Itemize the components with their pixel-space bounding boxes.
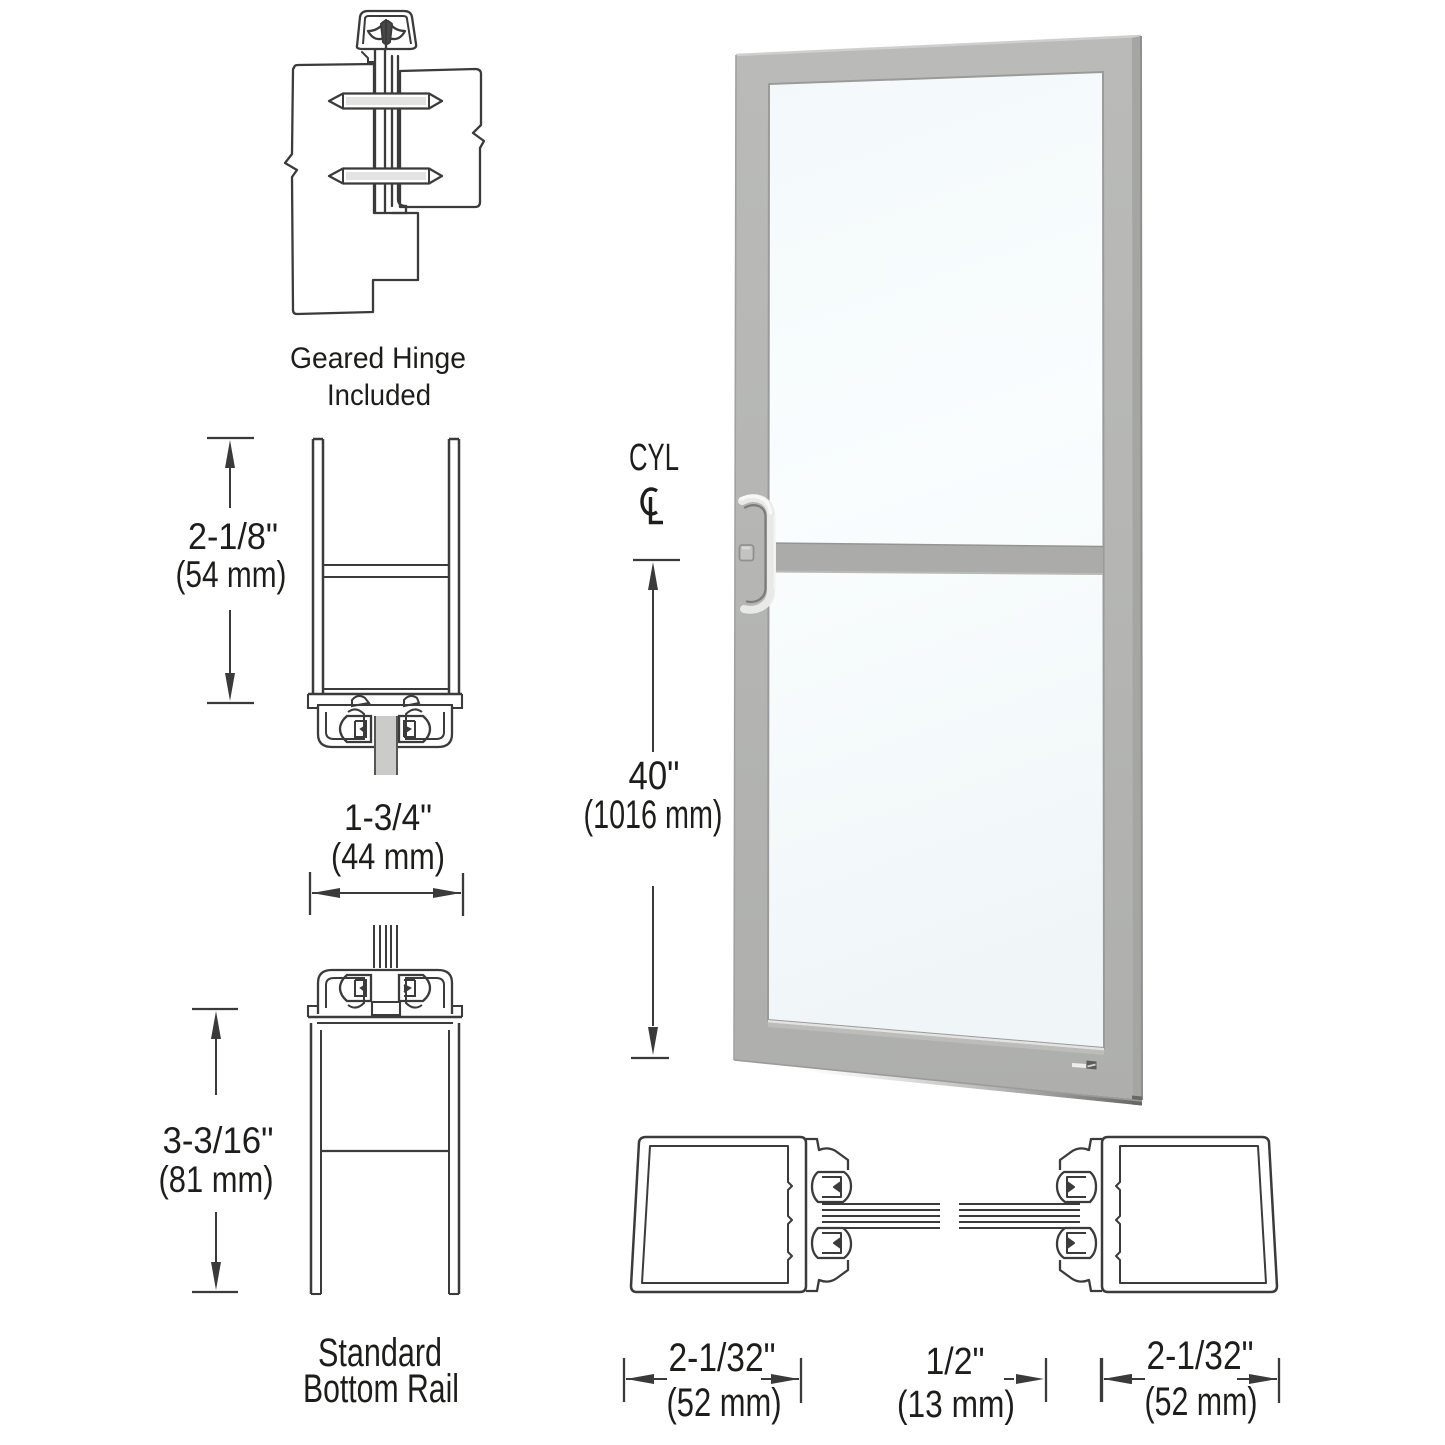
svg-text:1-3/4": 1-3/4" bbox=[344, 797, 432, 838]
svg-text:(52 mm): (52 mm) bbox=[1145, 1380, 1258, 1424]
svg-text:(81 mm): (81 mm) bbox=[159, 1159, 274, 1200]
svg-text:3-3/16": 3-3/16" bbox=[163, 1120, 274, 1161]
svg-text:2-1/32": 2-1/32" bbox=[1147, 1334, 1254, 1378]
svg-text:(44 mm): (44 mm) bbox=[331, 836, 445, 877]
svg-text:40": 40" bbox=[629, 754, 680, 798]
svg-text:Geared Hinge: Geared Hinge bbox=[290, 342, 466, 375]
svg-text:(52 mm): (52 mm) bbox=[667, 1381, 782, 1425]
svg-text:CYL: CYL bbox=[629, 437, 679, 479]
svg-text:(1016 mm): (1016 mm) bbox=[584, 793, 723, 837]
svg-text:(13 mm): (13 mm) bbox=[897, 1384, 1015, 1426]
svg-text:2-1/32": 2-1/32" bbox=[669, 1336, 776, 1380]
svg-text:Included: Included bbox=[327, 379, 431, 412]
svg-text:(54 mm): (54 mm) bbox=[176, 554, 287, 595]
svg-text:1/2": 1/2" bbox=[926, 1341, 985, 1383]
svg-text:2-1/8": 2-1/8" bbox=[188, 516, 278, 557]
svg-text:Bottom Rail: Bottom Rail bbox=[303, 1367, 459, 1411]
